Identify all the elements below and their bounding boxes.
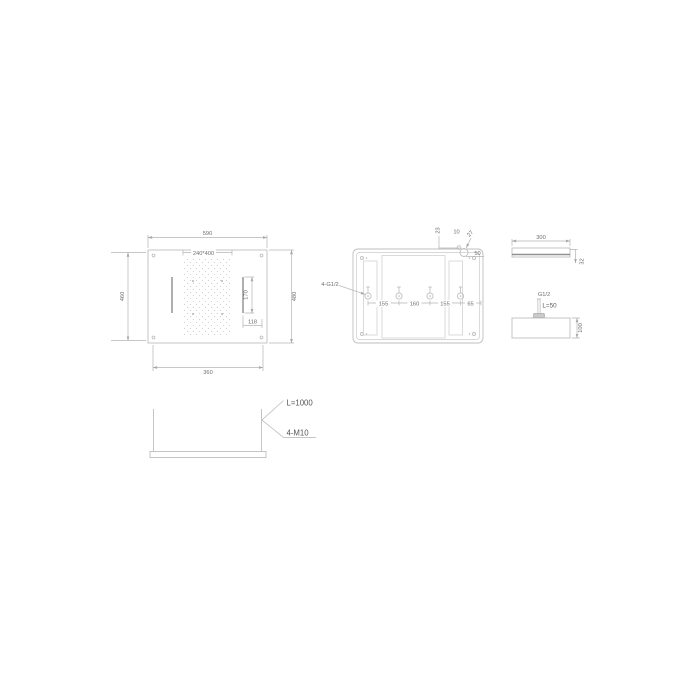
dim-inlet-top-label: 23 (436, 227, 442, 233)
back-right-strip (449, 261, 463, 335)
dim-inlet-height-label: 100 (578, 323, 584, 333)
dim-height-left-label: 460 (120, 292, 126, 302)
dim-spacing-1-label: 155 (379, 301, 389, 307)
dim-spray-area: 240*400 (183, 250, 232, 258)
g12-fitting-symbol (396, 287, 402, 299)
inlet-thread-label: G1/2 (538, 292, 550, 298)
dim-side-width-label: 300 (536, 235, 546, 241)
dim-slot-length: 170 (244, 277, 255, 313)
dim-height-left: 460 (111, 253, 146, 341)
dim-side-width: 300 (512, 235, 570, 246)
inlet-flange (534, 314, 545, 318)
dim-slot-length-label: 170 (244, 290, 250, 300)
rod-thread-label: 4-M10 (287, 429, 310, 438)
dim-side-thickness-label: 32 (580, 258, 586, 264)
bracket-leaders: L=1000 4-M10 (262, 399, 316, 438)
dim-spacing-3-label: 155 (440, 301, 450, 307)
rod-length-label: L=1000 (287, 399, 314, 408)
side-view-top: 300 32 (512, 235, 586, 265)
dim-inlet-height: 100 (572, 318, 584, 338)
fittings-leader-label: 4-G1/2 (321, 282, 338, 288)
dim-spacing-4-label: 65 (467, 301, 473, 307)
dim-inlet-dia-label: 27 (466, 230, 475, 239)
dim-inlet-offset-label: 10 (453, 230, 459, 236)
back-view: 155 160 155 65 4-G1/2 23 10 27 50 (321, 227, 484, 343)
side-view-inlet: G1/2 L=50 100 (512, 292, 584, 338)
leader-fittings: 4-G1/2 (321, 282, 365, 294)
dim-slot-offset-label: 118 (248, 320, 257, 326)
dim-spacing-2-label: 160 (410, 301, 420, 307)
g12-fitting-symbol (427, 287, 433, 299)
dim-fitting-spacing: 155 160 155 65 (368, 300, 481, 307)
dim-inlet-corner-label: 50 (474, 251, 480, 257)
dim-width-bottom-label: 360 (203, 370, 213, 376)
front-view: 240*400 590 480 460 360 1 (111, 231, 298, 376)
dim-spray-area-label: 240*400 (193, 251, 214, 257)
bracket-view: L=1000 4-M10 (150, 399, 316, 458)
dim-height-right: 480 (269, 250, 298, 343)
technical-drawing-canvas: 240*400 590 480 460 360 1 (0, 0, 700, 700)
inlet-stem-length-label: L=50 (542, 303, 557, 310)
dim-width-top: 590 (148, 231, 267, 248)
dim-side-thickness: 32 (570, 250, 586, 265)
dim-width-top-label: 590 (203, 231, 213, 237)
back-center-plate (382, 256, 445, 339)
g12-fitting-symbol (365, 287, 371, 299)
dim-slot-offset: 118 (243, 316, 262, 329)
dim-width-bottom: 360 (153, 345, 263, 376)
spray-nozzle-field (183, 258, 232, 335)
side-plate-outline (512, 248, 570, 257)
bracket-bar (150, 452, 266, 458)
dim-height-right-label: 480 (292, 292, 298, 302)
inlet-body-outline (512, 318, 570, 338)
back-corner-screws (361, 257, 476, 336)
